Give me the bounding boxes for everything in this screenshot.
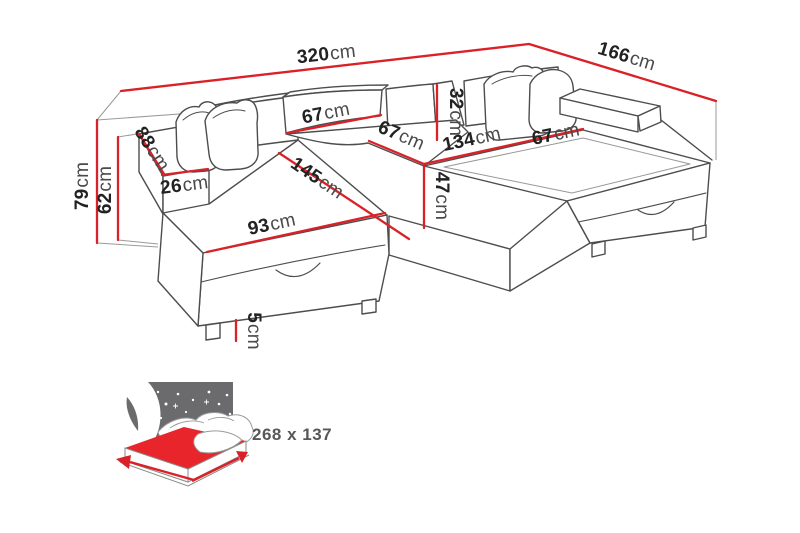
sofa-leg bbox=[693, 225, 706, 240]
sofa-outline bbox=[139, 66, 712, 340]
sofa-leg bbox=[206, 323, 220, 340]
dim-label-total-depth: 166cm bbox=[595, 38, 658, 75]
dim-label-seat-height: 47cm bbox=[431, 172, 452, 220]
sofa-bed-icon: 268 x 137 bbox=[116, 382, 332, 486]
dim-label-armrest-height: 62cm bbox=[95, 166, 116, 214]
sofa-leg bbox=[362, 299, 376, 314]
dim-label-backrest-height: 32cm bbox=[445, 88, 466, 136]
dim-label-leg-height: 5cm bbox=[243, 312, 264, 350]
middle-front-face bbox=[389, 216, 510, 291]
night-canopy-sliver bbox=[127, 397, 139, 431]
dim-label-total-height: 79cm bbox=[72, 162, 93, 210]
diagram-page: 320cm 166cm 79cm 62cm 88cm 26cm 67cm 67c… bbox=[0, 0, 800, 533]
sofa-dimension-diagram: 320cm 166cm 79cm 62cm 88cm 26cm 67cm 67c… bbox=[0, 0, 800, 533]
sleeping-area-size: 268 x 137 bbox=[252, 425, 332, 444]
sofa-leg bbox=[592, 241, 605, 257]
